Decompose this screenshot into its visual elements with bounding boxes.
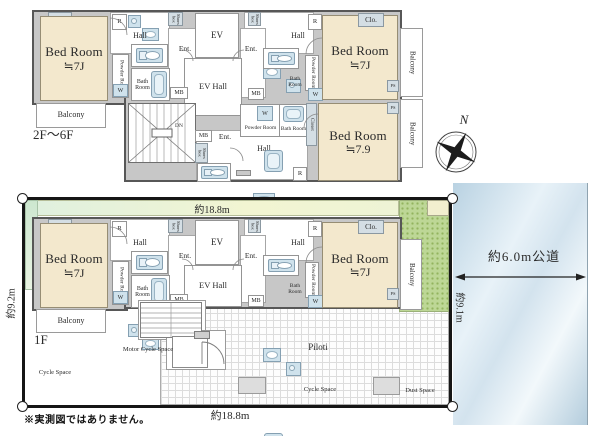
upper-floor-label: 2F〜6F: [33, 128, 97, 143]
disclaimer-note: ※実測図ではありません。: [24, 411, 204, 425]
piloti-label: Piloti: [292, 341, 344, 354]
upper-door-arcs: [30, 8, 402, 184]
first-right-balcony: Balcony: [400, 239, 422, 310]
road-width-arrow: [455, 271, 586, 283]
entrance-step: [194, 331, 210, 339]
floor-plan-canvas: 約6.0m公道 N EV EV Hall Clo. Bed Room ≒7J R…: [0, 0, 600, 436]
first-staircase: [140, 302, 202, 338]
cycle-rack-1: [238, 377, 266, 394]
sink-icon: [263, 348, 281, 362]
site-corner-marker: [17, 193, 28, 204]
site-depth-left-label: 約9.2m: [7, 283, 20, 325]
site-depth-right-label: 約9.1m: [452, 287, 465, 329]
site-width-top-label: 約18.8m: [194, 201, 229, 216]
site-corner-marker: [447, 193, 458, 204]
site-top-strip: 約18.8m: [25, 200, 399, 216]
motorcycle-space-label: Motor Cycle Space: [122, 341, 174, 358]
compass-north-label: N: [456, 112, 472, 128]
stove-icon: [286, 362, 301, 376]
road-width-label: 約6.0m公道: [466, 249, 582, 266]
cycle-rack-2: [373, 377, 400, 395]
piloti-door-arc: [200, 340, 226, 366]
corner-planter-box: [427, 200, 449, 216]
first-door-arcs: [30, 215, 402, 315]
upper-right-balcony-1: Balcony: [400, 28, 423, 97]
cycle-space-left-label: Cycle Space: [38, 364, 72, 382]
site-corner-marker: [447, 401, 458, 412]
dust-space-label: Dust Space: [401, 382, 439, 400]
cycle-space-center-label: Cycle Space: [303, 381, 337, 399]
upper-right-balcony-2: Balcony: [400, 99, 423, 168]
first-floor-label: 1F: [34, 332, 64, 348]
road-area: [453, 183, 588, 425]
